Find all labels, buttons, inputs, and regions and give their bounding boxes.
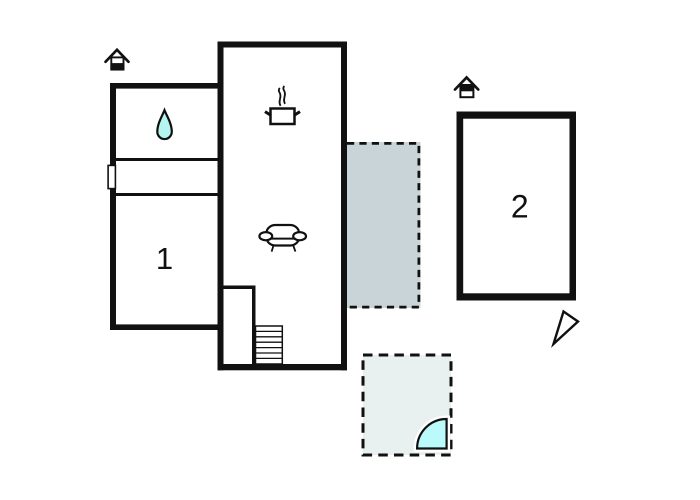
svg-text:2: 2 bbox=[511, 188, 529, 224]
svg-text:1: 1 bbox=[156, 241, 173, 276]
